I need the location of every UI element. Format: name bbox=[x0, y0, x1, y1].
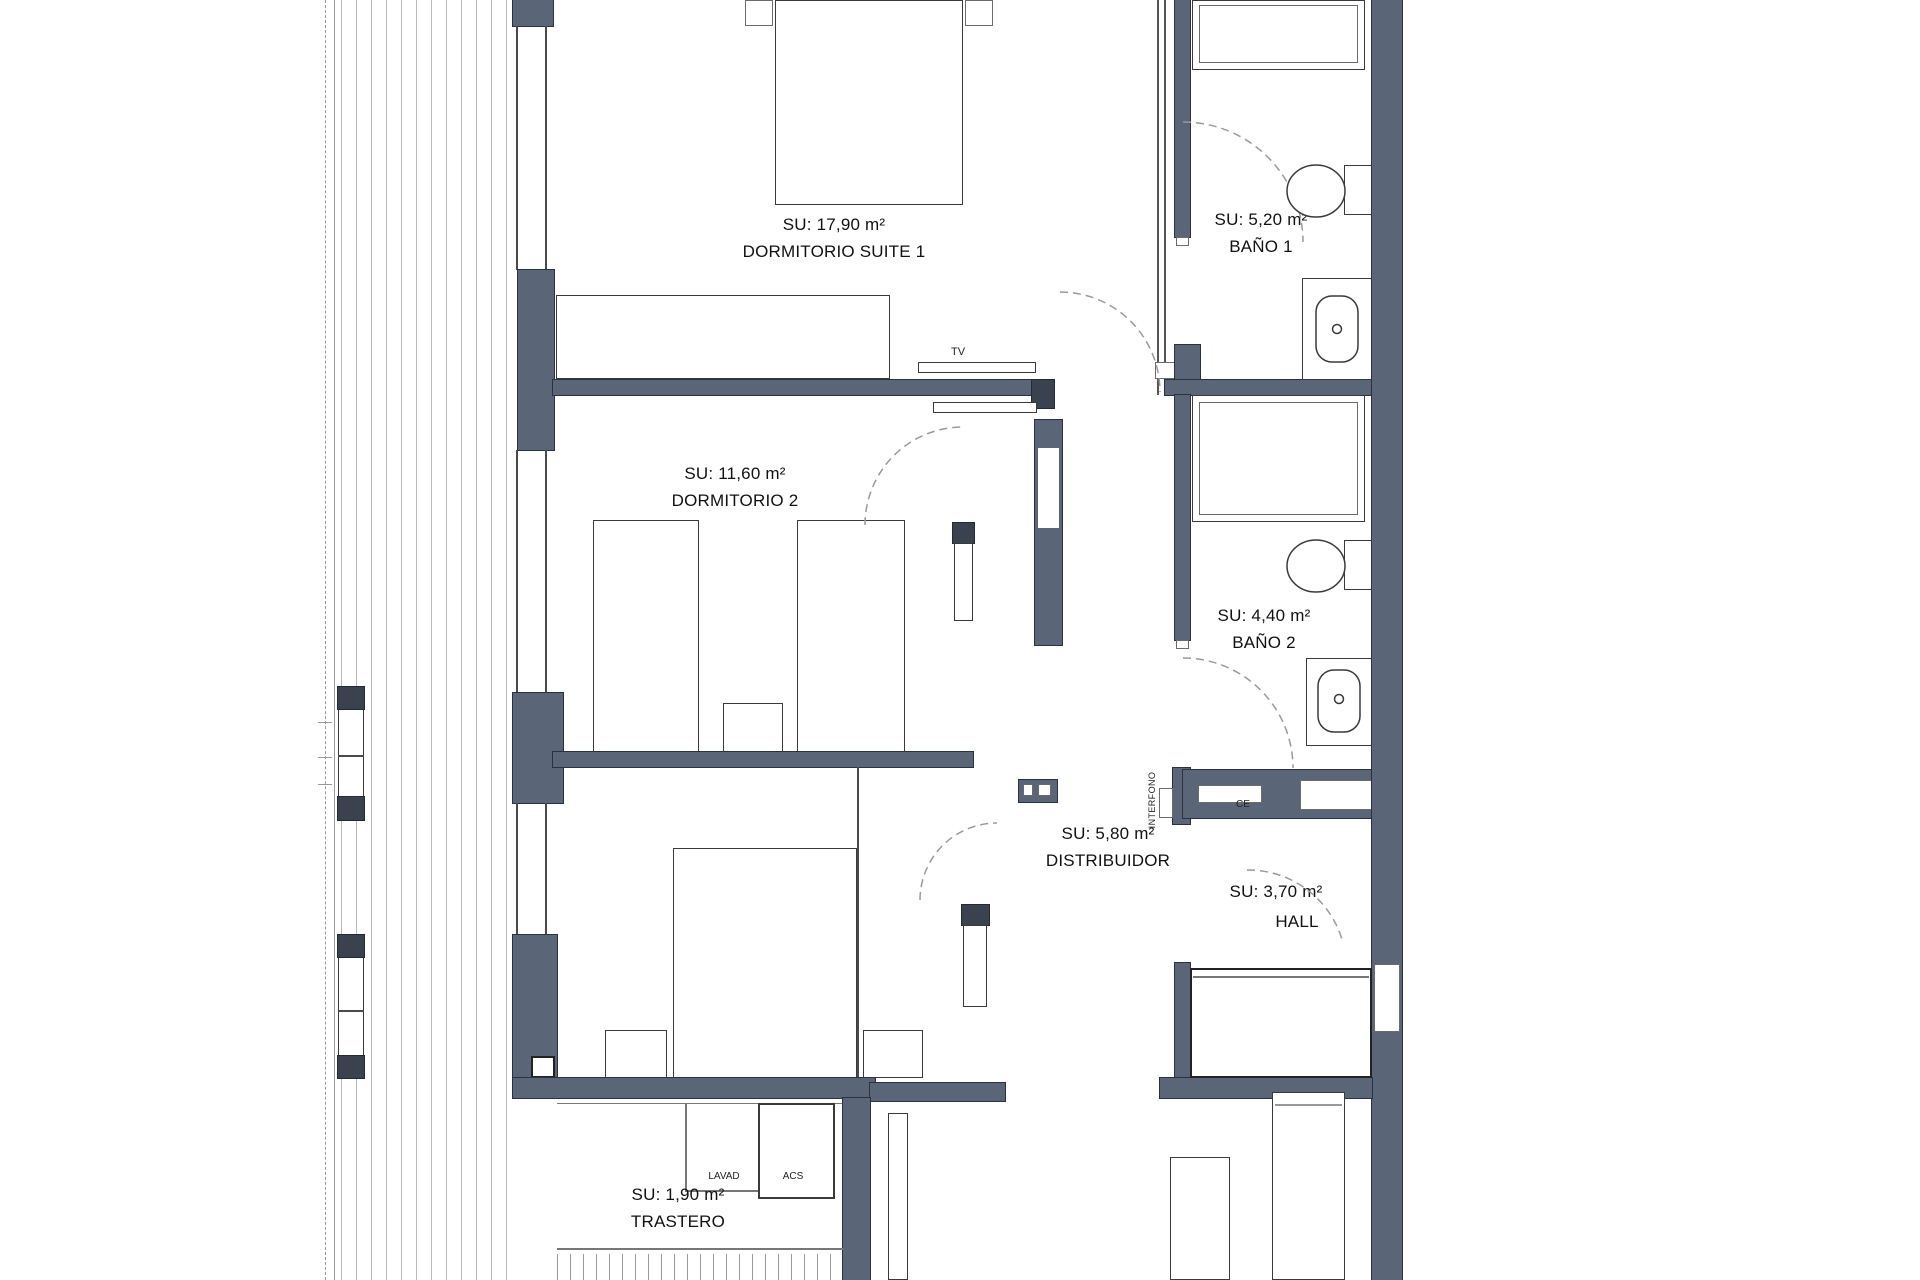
sink-drain bbox=[1335, 695, 1344, 704]
plan-overlay bbox=[0, 0, 1920, 1280]
door-arc-dorm2 bbox=[865, 427, 963, 525]
toilet-bowl bbox=[1287, 165, 1345, 217]
sink-drain bbox=[1333, 325, 1342, 334]
door-arc-dorm3 bbox=[920, 823, 997, 900]
floor-plan: SU: 17,90 m² DORMITORIO SUITE 1 TV SU: 1… bbox=[0, 0, 1920, 1280]
door-arc-entrance bbox=[1247, 870, 1343, 943]
door-arc-suite1 bbox=[1060, 292, 1160, 392]
toilet-bowl bbox=[1287, 540, 1345, 592]
door-arc-bano1 bbox=[1183, 122, 1303, 242]
door-arc-bano2 bbox=[1183, 658, 1293, 768]
